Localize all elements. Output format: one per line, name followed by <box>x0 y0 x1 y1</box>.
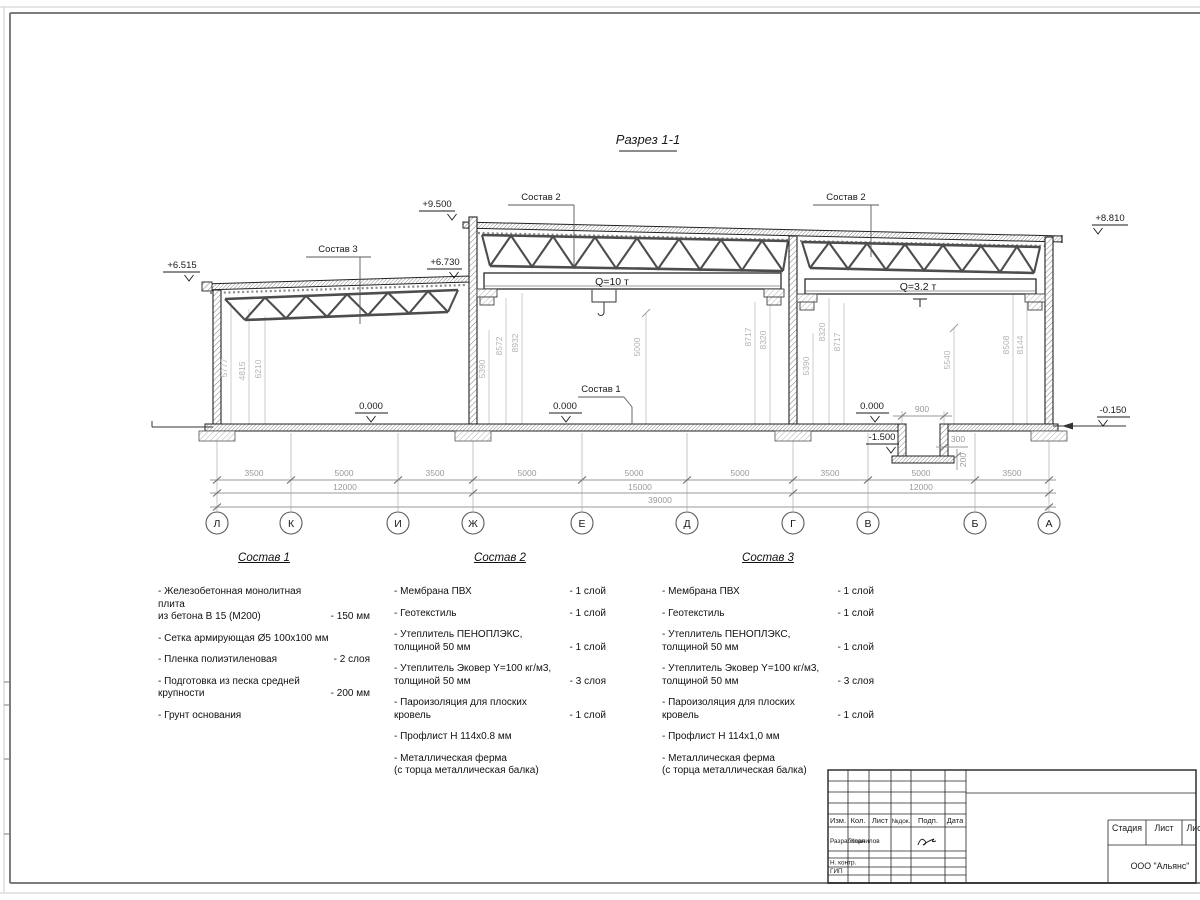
material-item: - Сетка армирующая Ø5 100х100 мм <box>158 633 370 646</box>
material-item: - Утеплитель Эковер Y=100 кг/м3, толщино… <box>662 663 874 688</box>
material-item: - Пароизоляция для плоских кровель - 1 с… <box>394 697 606 722</box>
composition-list-3: Состав 3 - Мембрана ПВХ - 1 слой - Геоте… <box>662 552 874 787</box>
axis-A: А <box>1045 518 1052 530</box>
material-item: - Утеплитель ПЕНОПЛЭКС, толщиной 50 мм -… <box>662 629 874 654</box>
material-name: - Подготовка из песка средней крупности <box>158 676 300 701</box>
leader-sostav2-right: Состав 2 <box>826 192 865 203</box>
crane-hook-32t <box>913 299 927 307</box>
material-name: - Металлическая ферма (с торца металличе… <box>394 753 539 778</box>
material-name: - Геотекстиль <box>394 608 457 621</box>
axis-E: Е <box>578 518 585 530</box>
axis-L: Л <box>214 518 221 530</box>
material-qty: - 1 слой <box>831 642 874 655</box>
svg-text:+9.500: +9.500 <box>422 199 451 210</box>
material-name: - Утеплитель ПЕНОПЛЭКС, толщиной 50 мм <box>662 629 790 654</box>
dim-r1-6: 3500 <box>821 468 840 478</box>
composition-2-items: - Мембрана ПВХ - 1 слой - Геотекстиль - … <box>394 586 606 778</box>
composition-list-1: Состав 1 - Железобетонная монолитная пли… <box>158 552 370 731</box>
crane-consoles-right <box>797 294 1045 310</box>
left-building <box>202 276 470 424</box>
elev-9500: +9.500 <box>419 199 457 220</box>
wall-axis-L <box>213 290 221 424</box>
leader-sostav3: Состав 3 <box>318 244 357 255</box>
material-qty: - 1 слой <box>563 608 606 621</box>
material-item: - Профлист Н 114х1,0 мм <box>662 731 874 744</box>
wall-axis-A <box>1045 237 1053 424</box>
axis-B: Б <box>972 518 979 530</box>
elev-minus150: -1.500 <box>866 432 899 453</box>
vdim-r3: 8717 <box>832 332 842 351</box>
dim-r1-5: 5000 <box>731 468 750 478</box>
material-name: - Мембрана ПВХ <box>662 586 740 599</box>
section-title-text: Разрез 1-1 <box>616 132 680 147</box>
tb-nkontr: Н. контр. <box>830 860 857 867</box>
svg-text:0.000: 0.000 <box>860 401 884 412</box>
material-item: - Геотекстиль - 1 слой <box>662 608 874 621</box>
material-item: - Грунт основания <box>158 710 370 723</box>
title-block: Изм. Кол. Лист №док. Подп. Дата Разработ… <box>828 770 1200 883</box>
material-qty: - 3 слоя <box>832 676 874 689</box>
material-name: - Утеплитель ПЕНОПЛЭКС, толщиной 50 мм <box>394 629 522 654</box>
material-item: - Пароизоляция для плоских кровель - 1 с… <box>662 697 874 722</box>
material-item: - Геотекстиль - 1 слой <box>394 608 606 621</box>
axis-I: И <box>394 518 402 530</box>
dim-r1-4: 5000 <box>625 468 644 478</box>
material-item: - Утеплитель Эковер Y=100 кг/м3, толщино… <box>394 663 606 688</box>
material-item: - Профлист Н 114х0.8 мм <box>394 731 606 744</box>
material-name: - Пленка полиэтиленовая <box>158 654 277 667</box>
tb-header-data: Дата <box>947 816 964 825</box>
vdim-m3: 8932 <box>510 333 520 352</box>
tb-razrabotal-name: Корнилов <box>851 838 880 845</box>
elev-6730: +6.730 <box>427 257 462 278</box>
composition-list-2: Состав 2 - Мембрана ПВХ - 1 слой - Геоте… <box>394 552 606 787</box>
tb-stadia: Стадия <box>1112 823 1142 833</box>
dim-total: 39000 <box>648 495 672 505</box>
dim-r1-7: 5000 <box>912 468 931 478</box>
material-qty: - 2 слоя <box>328 654 370 667</box>
axis-D: Д <box>683 518 690 530</box>
material-item: - Пленка полиэтиленовая - 2 слоя <box>158 654 370 667</box>
composition-2-title: Состав 2 <box>394 552 606 564</box>
crane-beam-10t <box>484 273 781 289</box>
middle-truss <box>482 235 788 271</box>
dim-r1-8: 3500 <box>1003 468 1022 478</box>
axis-V: В <box>864 518 871 530</box>
left-eave-cap <box>202 282 212 291</box>
tb-company: ООО "Альянс" <box>1131 861 1190 871</box>
leader-sostav1: Состав 1 <box>581 384 620 395</box>
material-qty: - 1 слой <box>563 642 606 655</box>
material-qty: - 1 слой <box>831 608 874 621</box>
dim-r1-0: 3500 <box>245 468 264 478</box>
elev-zero-mid: 0.000 <box>549 401 582 422</box>
material-name: - Железобетонная монолитная плита из бет… <box>158 586 325 624</box>
material-name: - Мембрана ПВХ <box>394 586 472 599</box>
grade-arrow <box>1062 423 1073 430</box>
material-item: - Металлическая ферма (с торца металличе… <box>662 753 874 778</box>
crane-hook-10t <box>592 290 616 316</box>
material-name: - Геотекстиль <box>662 608 725 621</box>
material-item: - Подготовка из песка средней крупности … <box>158 676 370 701</box>
material-name: - Пароизоляция для плоских кровель <box>394 697 563 722</box>
vdim-r4: 5540 <box>942 350 952 369</box>
elev-6515: +6.515 <box>163 260 200 281</box>
vdim-m2: 8572 <box>494 336 504 355</box>
vertical-dimension-texts: 5777 4815 6210 5390 8572 8932 5000 8717 … <box>219 322 1025 380</box>
svg-text:+6.515: +6.515 <box>167 260 196 271</box>
floor-and-foundations <box>152 421 1126 463</box>
material-name: - Утеплитель Эковер Y=100 кг/м3, толщино… <box>662 663 819 688</box>
middle-building: Q=10 т <box>469 217 788 424</box>
svg-text:+8.810: +8.810 <box>1095 213 1124 224</box>
material-qty: - 150 мм <box>325 611 370 624</box>
tb-listov: Лис <box>1186 823 1200 833</box>
crane-consoles-mid <box>477 289 784 305</box>
composition-1-items: - Железобетонная монолитная плита из бет… <box>158 586 370 722</box>
dim-r1-3: 5000 <box>518 468 537 478</box>
section-title: Разрез 1-1 <box>616 132 680 151</box>
tb-header-izm: Изм. <box>830 816 846 825</box>
axis-bubbles: Л К И Ж Е Д Г В Б А <box>206 512 1060 534</box>
material-name: - Грунт основания <box>158 710 241 723</box>
elev-minus015: -0.150 <box>1097 405 1130 426</box>
dimension-chain: 3500 5000 3500 5000 5000 5000 3500 5000 … <box>210 468 1056 511</box>
left-truss <box>225 290 458 320</box>
dim-r2-2: 12000 <box>909 482 933 492</box>
axis-Zh: Ж <box>468 518 478 530</box>
tb-signature <box>918 839 936 845</box>
elev-zero-right: 0.000 <box>856 401 889 422</box>
axis-G: Г <box>790 518 796 530</box>
svg-text:-1.500: -1.500 <box>869 432 896 443</box>
right-truss <box>802 242 1040 273</box>
vdim-r6: 8144 <box>1015 335 1025 354</box>
material-name: - Профлист Н 114х0.8 мм <box>394 731 512 744</box>
vdim-l1: 5777 <box>219 358 229 377</box>
floor-slab-right <box>948 424 1058 431</box>
material-qty: - 1 слой <box>563 586 606 599</box>
material-qty: - 1 слой <box>831 710 874 723</box>
material-item: - Мембрана ПВХ - 1 слой <box>394 586 606 599</box>
composition-3-items: - Мембрана ПВХ - 1 слой - Геотекстиль - … <box>662 586 874 778</box>
material-item: - Мембрана ПВХ - 1 слой <box>662 586 874 599</box>
floor-slab-left <box>205 424 898 431</box>
material-qty: - 1 слой <box>831 586 874 599</box>
vdim-r5: 8508 <box>1001 335 1011 354</box>
material-name: - Профлист Н 114х1,0 мм <box>662 731 780 744</box>
tb-list: Лист <box>1154 823 1173 833</box>
dim-r2-0: 12000 <box>333 482 357 492</box>
tb-header-kol: Кол. <box>851 816 866 825</box>
vdim-r2: 8320 <box>817 322 827 341</box>
vdim-l2: 4815 <box>237 361 247 380</box>
composition-1-title: Состав 1 <box>158 552 370 564</box>
vdim-m6: 8320 <box>758 330 768 349</box>
material-name: - Утеплитель Эковер Y=100 кг/м3, толщино… <box>394 663 551 688</box>
dim-r1-2: 3500 <box>426 468 445 478</box>
material-name: - Пароизоляция для плоских кровель <box>662 697 831 722</box>
dim-r1-1: 5000 <box>335 468 354 478</box>
material-item: - Металлическая ферма (с торца металличе… <box>394 753 606 778</box>
svg-text:0.000: 0.000 <box>359 401 383 412</box>
leader-sostav2-mid: Состав 2 <box>521 192 560 203</box>
elev-zero-left: 0.000 <box>355 401 388 422</box>
material-item: - Утеплитель ПЕНОПЛЭКС, толщиной 50 мм -… <box>394 629 606 654</box>
vdim-m4: 5000 <box>632 337 642 356</box>
vdim-r1: 5390 <box>801 356 811 375</box>
svg-text:0.000: 0.000 <box>553 401 577 412</box>
material-qty: - 200 мм <box>325 688 370 701</box>
vdim-m5: 8717 <box>743 327 753 346</box>
drawing-sheet: Разрез 1-1 <box>0 0 1200 900</box>
vdim-l3: 6210 <box>253 359 263 378</box>
tb-header-ndok: №док. <box>892 818 911 825</box>
composition-3-title: Состав 3 <box>662 552 874 564</box>
axis-K: К <box>288 518 295 530</box>
wall-axis-G <box>789 236 797 424</box>
pit-width-dim: 900 <box>915 404 929 414</box>
svg-text:-0.150: -0.150 <box>1100 405 1127 416</box>
material-qty: - 3 слоя <box>564 676 606 689</box>
svg-text:+6.730: +6.730 <box>430 257 459 268</box>
elev-8810: +8.810 <box>1092 213 1128 234</box>
material-name: - Металлическая ферма (с торца металличе… <box>662 753 807 778</box>
crane-32t-label: Q=3.2 т <box>900 281 937 293</box>
pit-200-dim: 200 <box>958 453 968 467</box>
tb-gip: ГИП <box>830 868 843 875</box>
crane-10t-label: Q=10 т <box>595 276 629 288</box>
tb-header-list: Лист <box>872 816 889 825</box>
wall-axis-Zh <box>469 217 477 424</box>
pit <box>892 424 954 463</box>
foundations <box>199 431 1067 441</box>
material-qty: - 1 слой <box>563 710 606 723</box>
left-roof <box>203 276 470 290</box>
vdim-m1: 5390 <box>477 359 487 378</box>
material-name: - Сетка армирующая Ø5 100х100 мм <box>158 633 329 646</box>
material-item: - Железобетонная монолитная плита из бет… <box>158 586 370 624</box>
pit-300-dim: 300 <box>951 434 965 444</box>
dim-r2-1: 15000 <box>628 482 652 492</box>
tb-header-podp: Подп. <box>918 816 938 825</box>
